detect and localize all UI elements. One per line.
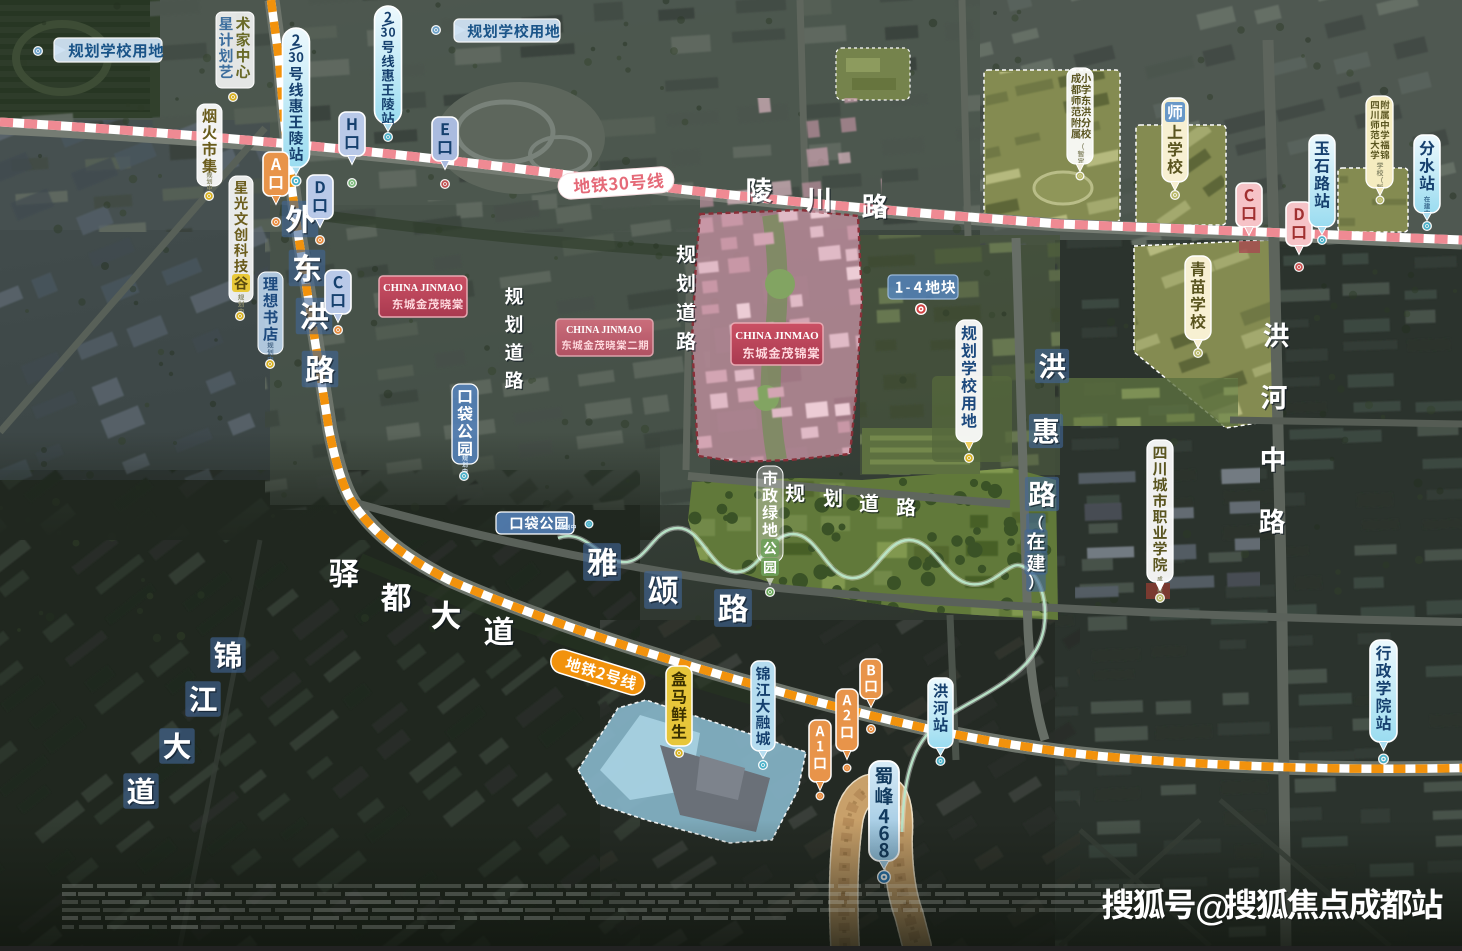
svg-text:CHINA JINMAO: CHINA JINMAO (566, 325, 642, 336)
svg-text:@: @ (1195, 887, 1230, 928)
svg-text:CHINA JINMAO: CHINA JINMAO (383, 283, 463, 294)
svg-text:CHINA JINMAO: CHINA JINMAO (735, 330, 819, 342)
